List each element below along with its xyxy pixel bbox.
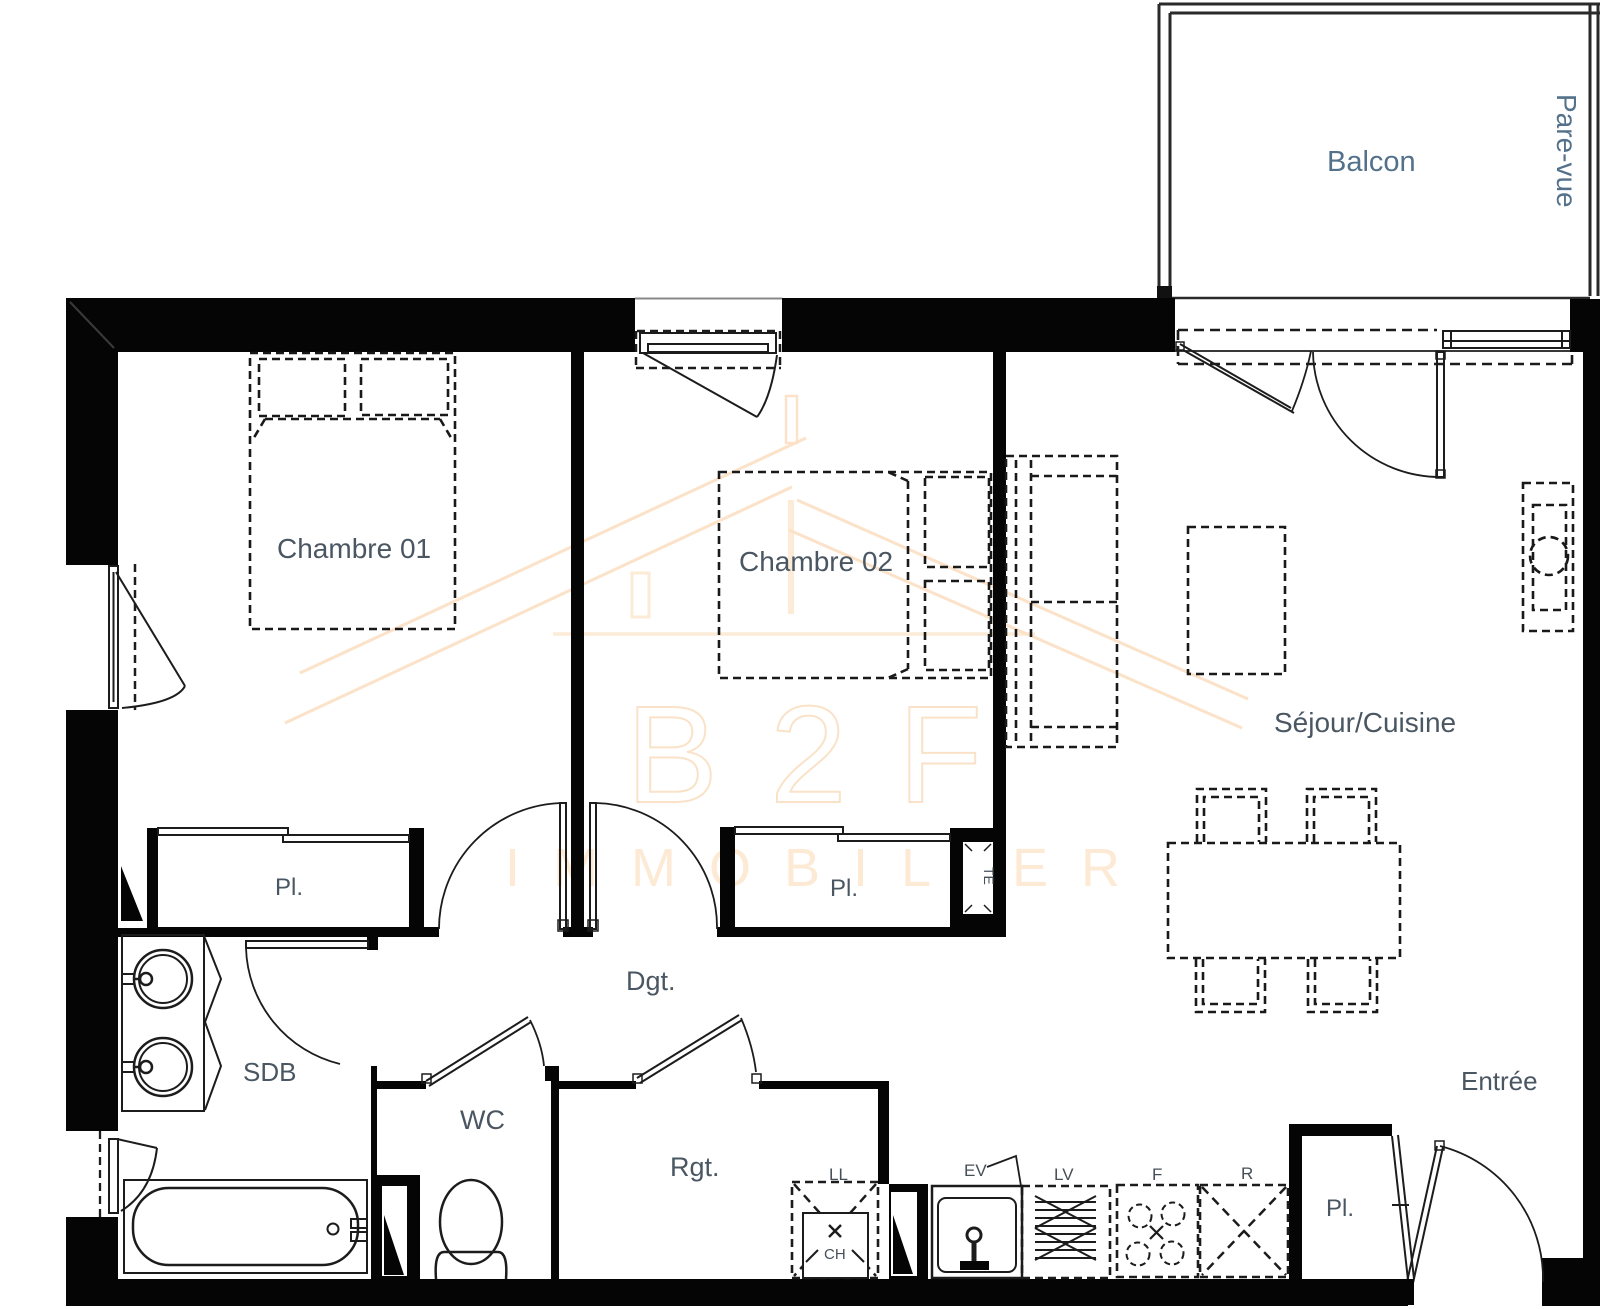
svg-text:LL: LL — [829, 1165, 848, 1184]
svg-text:Entrée: Entrée — [1461, 1066, 1538, 1096]
svg-text:Chambre 01: Chambre 01 — [277, 533, 431, 564]
svg-text:Pl.: Pl. — [1326, 1195, 1354, 1222]
svg-text:Balcon: Balcon — [1327, 146, 1416, 178]
svg-text:F: F — [898, 678, 982, 832]
svg-text:CH: CH — [824, 1246, 846, 1263]
svg-text:SDB: SDB — [243, 1057, 296, 1087]
svg-text:Chambre 02: Chambre 02 — [739, 546, 893, 577]
svg-text:2: 2 — [770, 678, 847, 832]
svg-text:Pl.: Pl. — [830, 875, 858, 902]
svg-text:Pl.: Pl. — [275, 874, 303, 901]
svg-text:TE: TE — [981, 867, 997, 885]
svg-text:R: R — [1241, 1164, 1253, 1183]
svg-text:LV: LV — [1054, 1165, 1074, 1184]
svg-text:EV: EV — [964, 1161, 987, 1180]
svg-text:B: B — [626, 678, 718, 832]
svg-text:Dgt.: Dgt. — [626, 966, 676, 996]
svg-text:Rgt.: Rgt. — [670, 1152, 720, 1182]
svg-text:Séjour/Cuisine: Séjour/Cuisine — [1274, 707, 1456, 738]
svg-text:WC: WC — [460, 1105, 505, 1135]
svg-text:F: F — [1152, 1165, 1162, 1184]
svg-text:Pare-vue: Pare-vue — [1551, 94, 1582, 208]
